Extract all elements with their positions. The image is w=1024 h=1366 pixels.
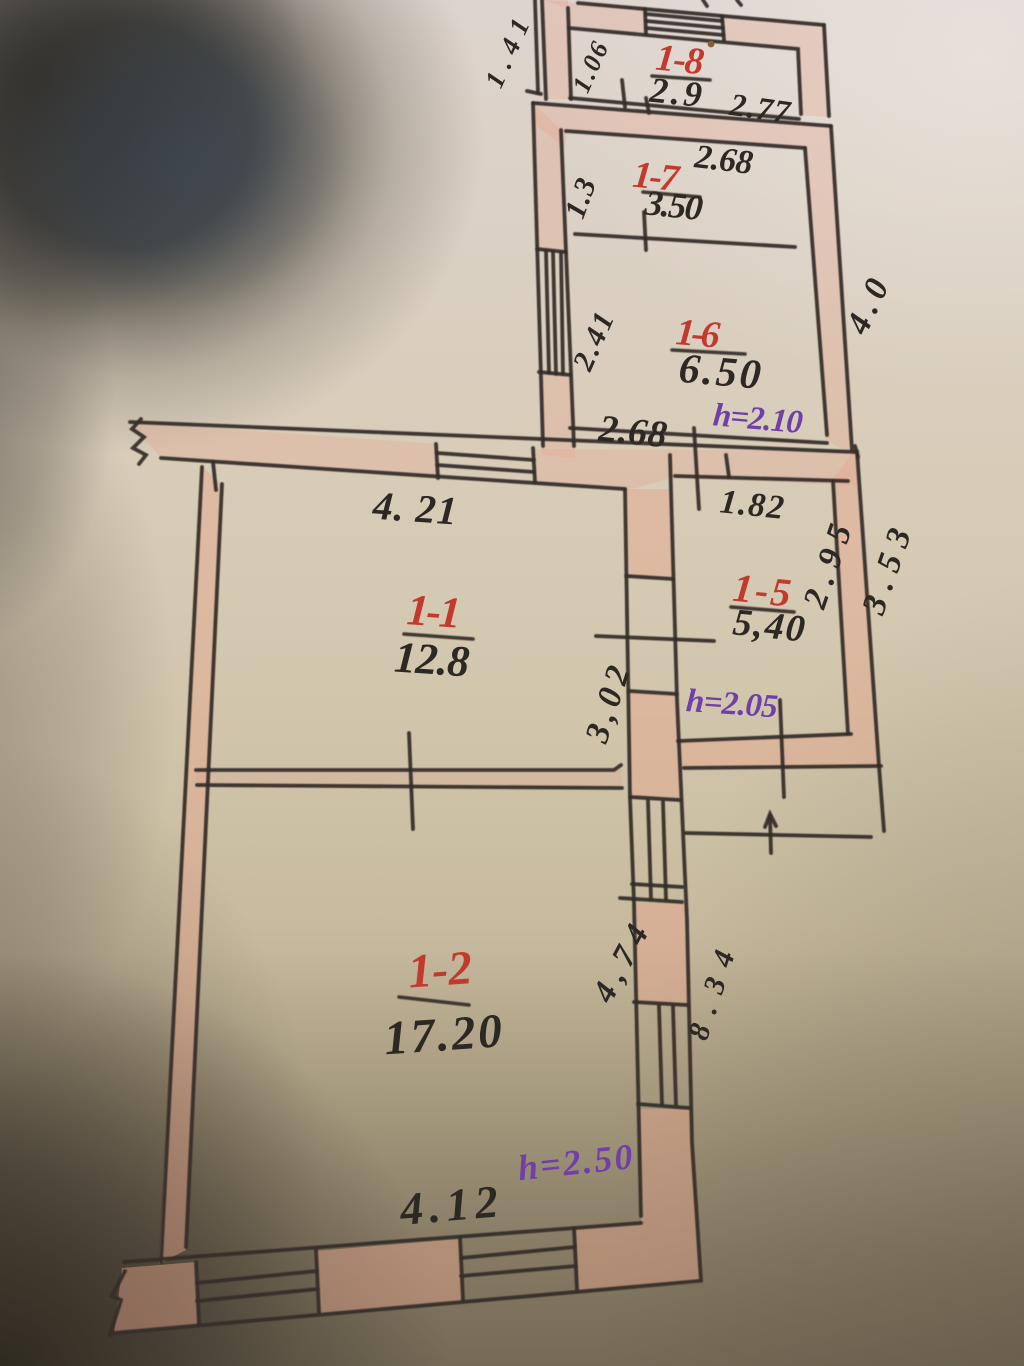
svg-text:4.12: 4.12 xyxy=(397,1175,500,1234)
svg-text:1-7: 1-7 xyxy=(631,154,683,201)
svg-text:2.68: 2.68 xyxy=(596,407,669,456)
svg-text:1-5: 1-5 xyxy=(731,565,793,616)
svg-text:4. 21: 4. 21 xyxy=(371,483,459,534)
svg-text:1.82: 1.82 xyxy=(718,483,786,526)
svg-text:1-8: 1-8 xyxy=(654,37,706,84)
svg-text:1-1: 1-1 xyxy=(405,585,462,638)
svg-text:17.20: 17.20 xyxy=(382,1004,503,1065)
svg-text:12.8: 12.8 xyxy=(393,632,471,686)
svg-text:1-2: 1-2 xyxy=(406,941,474,998)
svg-text:h=2.05: h=2.05 xyxy=(685,683,779,725)
svg-text:2.68: 2.68 xyxy=(692,138,755,182)
svg-text:1-6: 1-6 xyxy=(674,311,721,357)
